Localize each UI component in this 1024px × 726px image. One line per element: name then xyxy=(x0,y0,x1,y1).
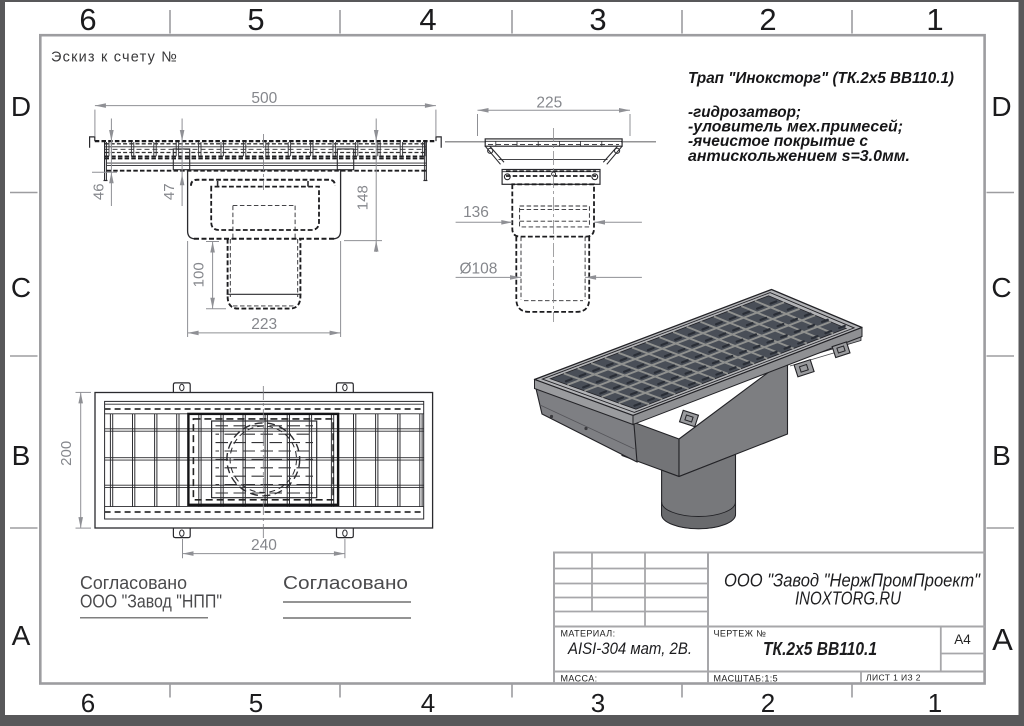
svg-text:А: А xyxy=(992,622,1013,657)
svg-text:1: 1 xyxy=(926,2,943,37)
svg-text:3: 3 xyxy=(589,2,606,37)
svg-text:2: 2 xyxy=(761,688,775,718)
svg-text:D: D xyxy=(11,91,31,122)
svg-text:МАСШТАБ:1:5: МАСШТАБ:1:5 xyxy=(714,674,779,684)
svg-text:4: 4 xyxy=(419,2,436,37)
svg-text:100: 100 xyxy=(191,262,208,287)
svg-text:1: 1 xyxy=(928,688,942,718)
svg-text:МАССА:: МАССА: xyxy=(561,674,598,684)
svg-text:ТК.2х5 ВВ110.1: ТК.2х5 ВВ110.1 xyxy=(763,639,877,659)
svg-text:3: 3 xyxy=(591,688,605,718)
svg-text:ЧЕРТЕЖ №: ЧЕРТЕЖ № xyxy=(714,629,767,639)
svg-text:2: 2 xyxy=(759,2,776,37)
svg-text:200: 200 xyxy=(58,441,75,466)
svg-text:46: 46 xyxy=(90,183,107,200)
svg-text:5: 5 xyxy=(249,688,263,718)
svg-text:D: D xyxy=(991,91,1011,122)
svg-text:Согласовано: Согласовано xyxy=(80,573,187,593)
svg-text:47: 47 xyxy=(161,183,178,200)
svg-text:A: A xyxy=(12,620,31,651)
svg-text:C: C xyxy=(991,272,1011,303)
svg-text:МАТЕРИАЛ:: МАТЕРИАЛ: xyxy=(561,629,616,639)
svg-text:Трап "Инoксторг" (ТК.2х5 ВВ110: Трап "Инoксторг" (ТК.2х5 ВВ110.1) xyxy=(688,70,954,87)
svg-text:антискольжением s=3.0мм.: антискольжением s=3.0мм. xyxy=(688,148,910,165)
svg-text:148: 148 xyxy=(355,185,372,210)
svg-text:5: 5 xyxy=(247,2,264,37)
svg-text:AISI-304 мат, 2В.: AISI-304 мат, 2В. xyxy=(567,640,692,658)
svg-text:C: C xyxy=(11,272,31,303)
svg-text:ООО "Завод "НПП": ООО "Завод "НПП" xyxy=(80,592,222,612)
svg-text:500: 500 xyxy=(251,90,277,107)
svg-text:Ø108: Ø108 xyxy=(460,261,498,278)
svg-text:6: 6 xyxy=(79,2,96,37)
svg-text:B: B xyxy=(12,440,31,471)
svg-text:INOXTORG.RU: INOXTORG.RU xyxy=(795,588,902,609)
svg-text:6: 6 xyxy=(81,688,95,718)
svg-text:4: 4 xyxy=(421,688,435,718)
svg-text:Согласовано: Согласовано xyxy=(283,573,408,593)
svg-text:136: 136 xyxy=(463,204,489,221)
svg-text:Эскиз к счету №: Эскиз к счету № xyxy=(51,50,178,66)
svg-text:225: 225 xyxy=(536,94,562,111)
svg-text:240: 240 xyxy=(251,537,277,554)
svg-text:B: B xyxy=(992,440,1011,471)
svg-text:223: 223 xyxy=(251,316,277,333)
svg-text:А4: А4 xyxy=(954,632,971,647)
svg-text:ЛИСТ 1 ИЗ 2: ЛИСТ 1 ИЗ 2 xyxy=(866,673,921,683)
